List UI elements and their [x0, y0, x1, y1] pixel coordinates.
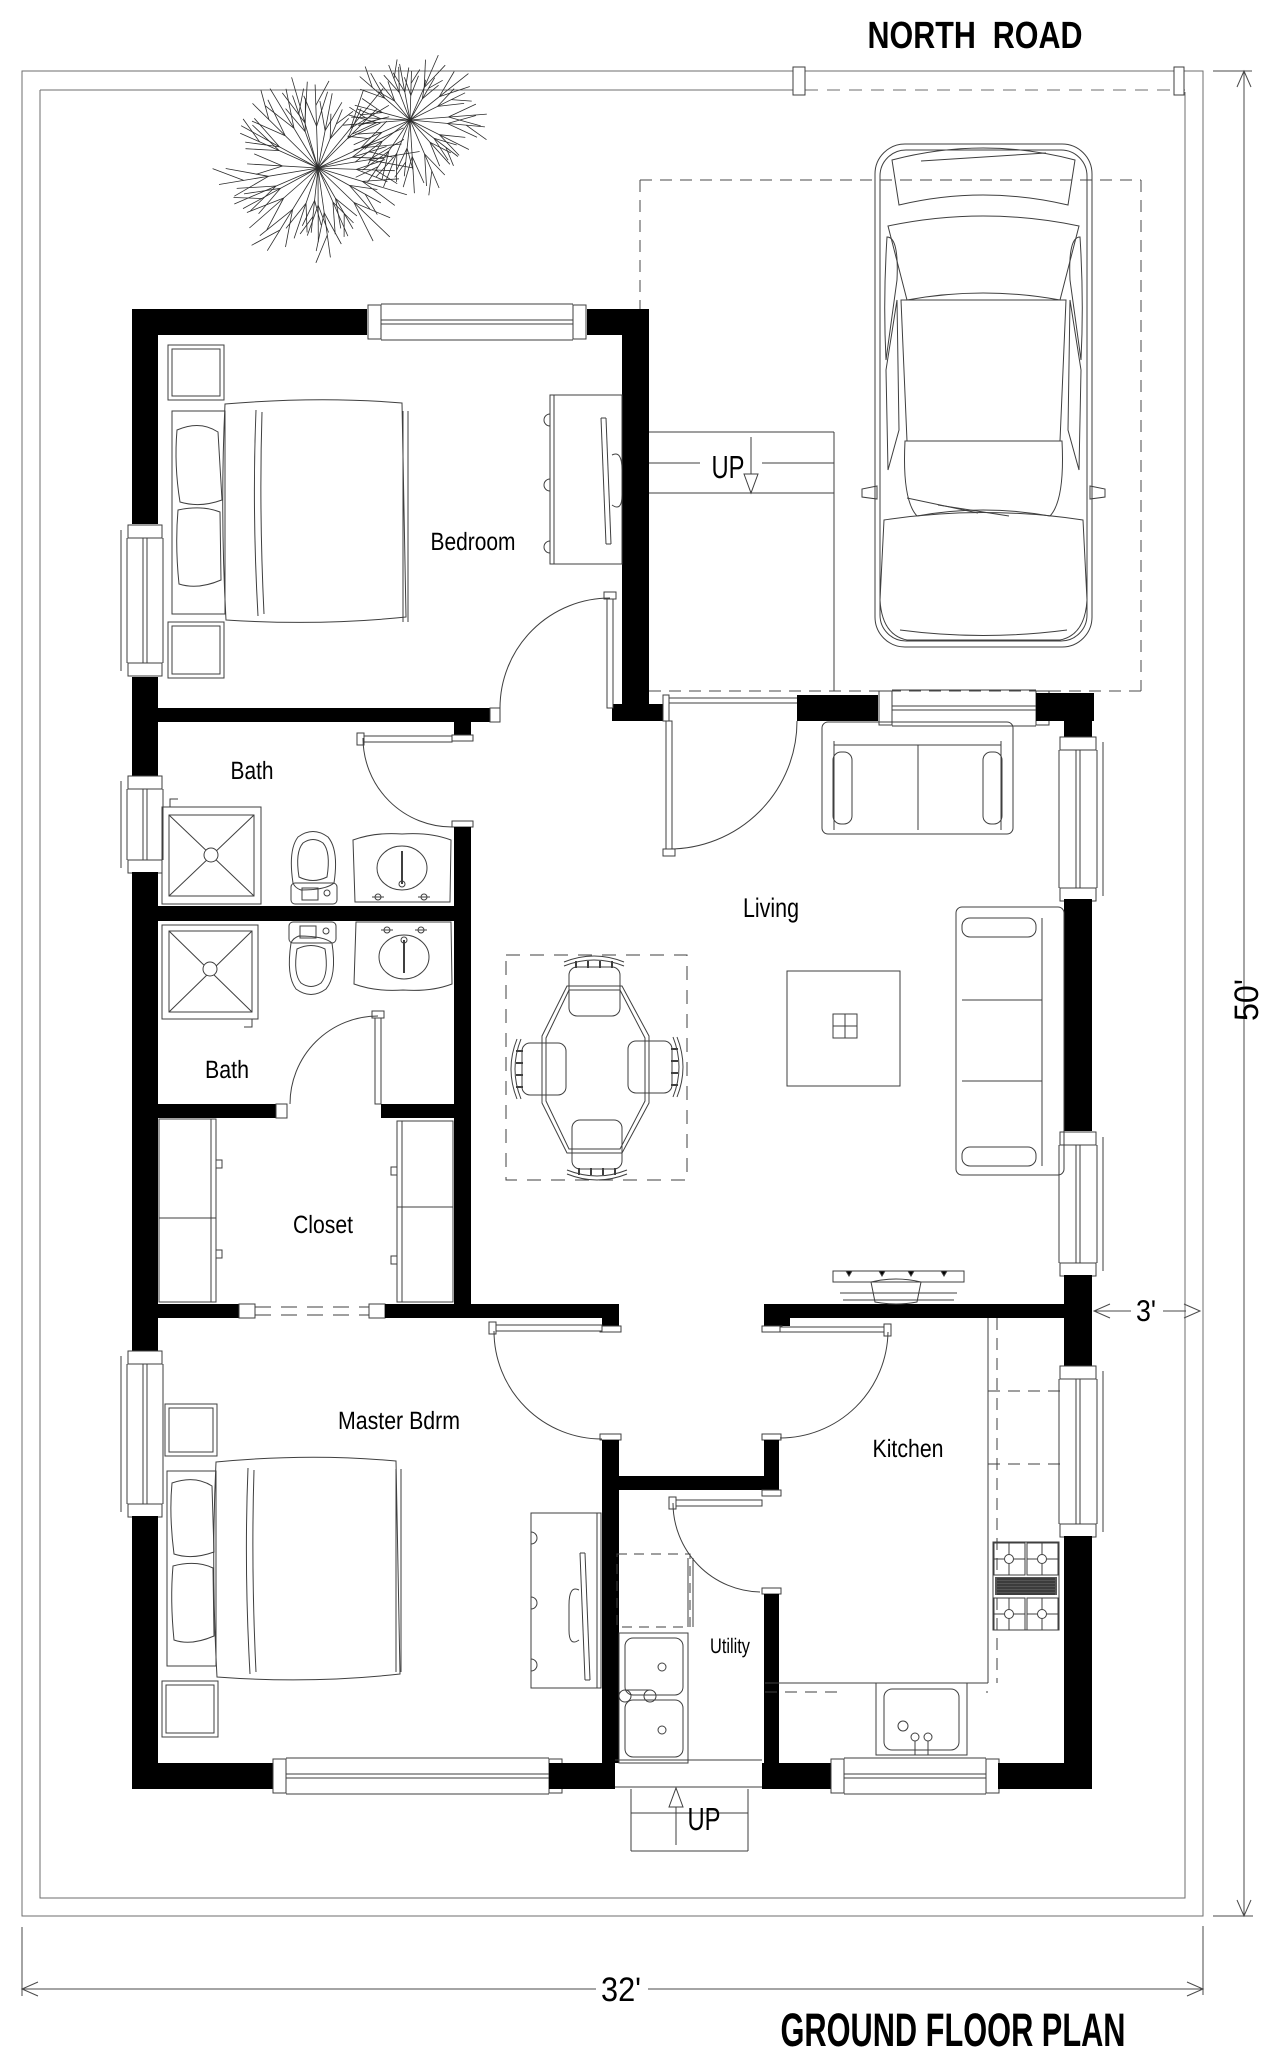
svg-text:3': 3': [1136, 1295, 1156, 1328]
svg-text:50': 50': [1228, 979, 1266, 1021]
svg-text:Living: Living: [743, 893, 799, 923]
svg-text:Bedroom: Bedroom: [431, 528, 516, 556]
svg-text:Closet: Closet: [293, 1211, 353, 1239]
svg-text:Bath: Bath: [205, 1056, 249, 1084]
svg-text:NORTH ROAD: NORTH ROAD: [868, 15, 1083, 57]
svg-text:Bath: Bath: [231, 757, 274, 785]
svg-text:UP: UP: [712, 449, 745, 485]
svg-text:GROUND FLOOR PLAN: GROUND FLOOR PLAN: [781, 2003, 1126, 2056]
svg-text:Utility: Utility: [710, 1635, 750, 1658]
svg-text:32': 32': [601, 1971, 641, 2009]
svg-text:Master Bdrm: Master Bdrm: [338, 1407, 460, 1435]
svg-text:UP: UP: [688, 1801, 721, 1837]
svg-text:Kitchen: Kitchen: [873, 1435, 944, 1463]
